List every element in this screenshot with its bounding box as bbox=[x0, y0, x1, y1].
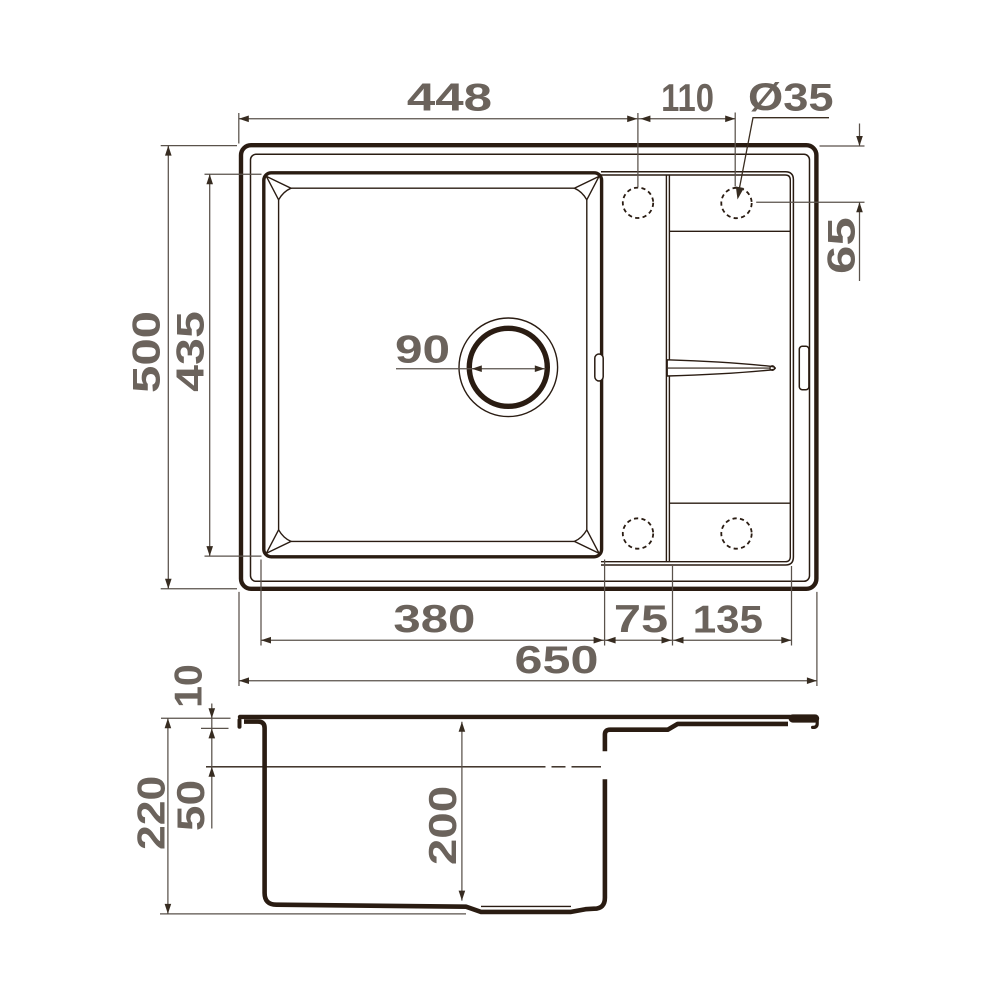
svg-text:220: 220 bbox=[129, 776, 173, 850]
svg-text:10: 10 bbox=[168, 664, 211, 707]
svg-text:435: 435 bbox=[169, 311, 213, 392]
svg-text:50: 50 bbox=[169, 780, 213, 831]
svg-text:448: 448 bbox=[407, 75, 492, 119]
svg-text:380: 380 bbox=[393, 598, 475, 641]
svg-text:135: 135 bbox=[693, 597, 763, 641]
svg-text:Ø35: Ø35 bbox=[748, 75, 833, 118]
svg-text:110: 110 bbox=[661, 75, 714, 119]
svg-text:200: 200 bbox=[422, 786, 465, 865]
svg-text:65: 65 bbox=[819, 217, 863, 274]
svg-text:650: 650 bbox=[515, 637, 599, 681]
svg-text:500: 500 bbox=[125, 311, 168, 393]
svg-text:75: 75 bbox=[614, 598, 668, 641]
svg-text:90: 90 bbox=[395, 329, 450, 372]
